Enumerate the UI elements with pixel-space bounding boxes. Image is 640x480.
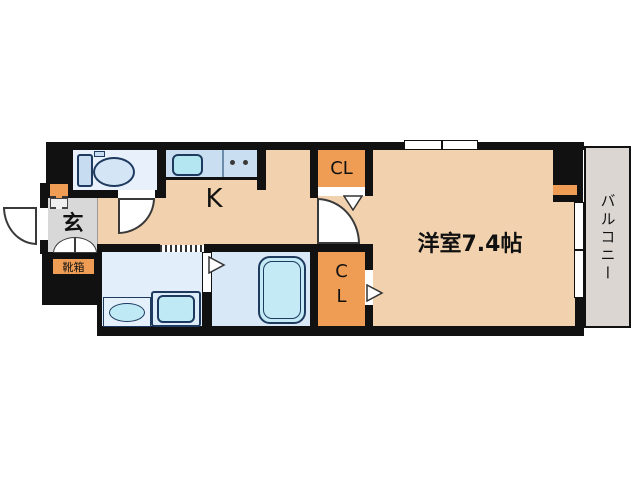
- closet-upper-label: CL: [318, 150, 365, 187]
- washroom-folding-door: [160, 245, 204, 252]
- stove-burner-dot: [230, 160, 235, 165]
- kitchen-label: K: [196, 184, 232, 214]
- toilet-tank-icon: [77, 154, 93, 187]
- wall-bath-right: [310, 252, 318, 326]
- bathtub-inner-line: [263, 261, 301, 319]
- window-top-center-tick: [441, 141, 443, 149]
- counter-divider-line: [222, 150, 224, 177]
- pipe-space-accent: [553, 185, 577, 195]
- toilet-bowl-icon: [93, 157, 135, 187]
- toilet-flush-icon: [94, 151, 105, 157]
- closet-lower-label: C L: [318, 255, 365, 313]
- meter-box-upper: [50, 184, 68, 198]
- toilet-doorway-opening: [118, 190, 155, 198]
- wall-hall-bottom-left: [97, 244, 160, 252]
- bathroom-door-marker: [208, 256, 226, 274]
- washing-machine-icon: [157, 295, 195, 323]
- entrance-door-arc: [3, 207, 37, 245]
- closet-lower-door-marker: [366, 284, 384, 302]
- wall-bottom: [97, 326, 584, 336]
- wall-right-lower: [575, 298, 584, 326]
- shoe-cabinet-label: 靴箱: [52, 258, 95, 275]
- wall-toilet-bottom-left: [73, 190, 118, 198]
- stove-burner-dot: [243, 160, 248, 165]
- closet-upper-door-marker: [343, 195, 363, 211]
- western-room-label: 洋室7.4帖: [380, 228, 560, 256]
- kitchen-sink-icon: [172, 154, 203, 176]
- wall-toilet-bottom-right: [155, 190, 166, 198]
- wall-hall-bottom-right: [204, 244, 373, 252]
- window-right-center-tick: [575, 249, 583, 251]
- wall-middle-upper: [310, 142, 318, 198]
- entrance-label: 玄: [48, 205, 98, 239]
- wall-closet-upper-right: [365, 142, 373, 196]
- balcony-label: バルコニー: [588, 168, 628, 308]
- wall-left-upper: [40, 183, 48, 208]
- floor-plan: 玄 靴箱 K CL C L 洋室7.4帖 バルコニー: [0, 0, 640, 480]
- window-right: [574, 202, 584, 298]
- wall-counter-stub: [257, 142, 266, 190]
- window-top: [404, 140, 478, 150]
- vanity-basin-icon: [109, 303, 145, 322]
- wall-washroom-left: [97, 252, 102, 327]
